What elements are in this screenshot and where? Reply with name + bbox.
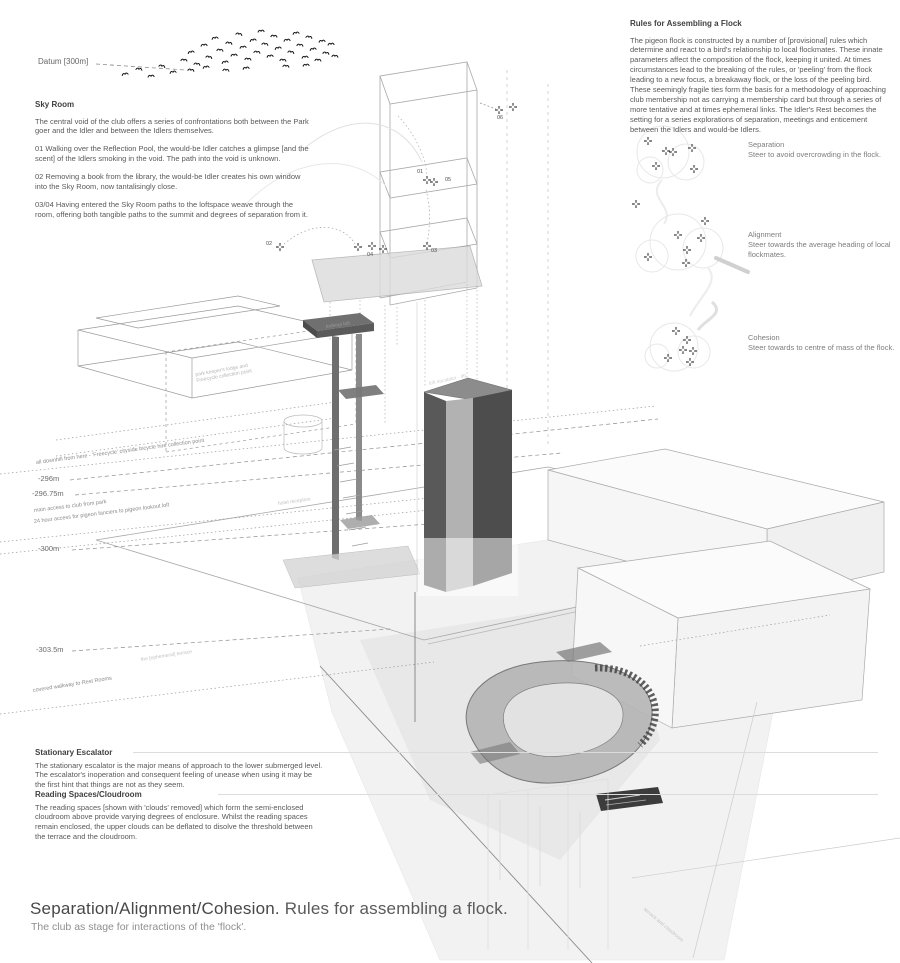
cloudroom-text-block: Reading Spaces/Cloudroom The reading spa… (35, 790, 323, 850)
rule-desc: Steer to avoid overcrowding in the flock… (748, 150, 881, 159)
heading-rule-line (133, 752, 878, 753)
rule-desc: Steer towards to centre of mass of the f… (748, 343, 894, 352)
cloudroom-paragraph: The reading spaces [shown with 'clouds' … (35, 803, 323, 843)
escalator-paragraph: The stationary escalator is the major me… (35, 761, 323, 791)
sky-room-paragraph: The central void of the club offers a se… (35, 117, 311, 137)
sheet-subtitle: The club as stage for interactions of th… (31, 921, 246, 933)
rules-paragraph: The pigeon flock is constructed by a num… (630, 36, 896, 85)
marker-03: 03 (431, 248, 437, 254)
sheet-title: Separation/Alignment/Cohesion. Rules for… (30, 899, 508, 919)
cloudroom-heading: Reading Spaces/Cloudroom (35, 790, 323, 801)
rule-name: Cohesion (748, 333, 900, 343)
rules-heading: Rules for Assembling a Flock (630, 19, 896, 30)
bird-flock (122, 30, 339, 77)
title-main: Separation/Alignment/Cohesion. (30, 899, 280, 918)
heading-rule-line (218, 794, 878, 795)
loft-escalator-tower (418, 378, 518, 596)
lookout-loft-structure (303, 313, 384, 560)
escalator-heading: Stationary Escalator (35, 748, 323, 759)
rules-paragraph: These seemingly fragile ties form the ba… (630, 85, 896, 134)
elevation-label-296: -296m (38, 474, 59, 483)
sky-room-paragraph: 01 Walking over the Reflection Pool, the… (35, 144, 311, 164)
rules-text-block: Rules for Assembling a Flock The pigeon … (630, 19, 896, 142)
title-rest: Rules for assembling a flock. (280, 899, 508, 918)
elevation-label-300: -300m (38, 544, 59, 553)
sky-room-paragraph: 02 Removing a book from the library, the… (35, 172, 311, 192)
marker-01: 01 (417, 169, 423, 175)
rule-name: Separation (748, 140, 900, 150)
datum-label: Datum [300m] (38, 57, 88, 66)
poster-page: Datum [300m] Sky Room The central void o… (0, 0, 900, 963)
marker-02: 02 (266, 241, 272, 247)
marker-06: 06 (497, 115, 503, 121)
sky-room-tower (312, 62, 548, 446)
marker-04: 04 (367, 252, 373, 258)
rule-name: Alignment (748, 230, 900, 240)
elevation-label-296-75: -296.75m (32, 489, 64, 498)
rule-alignment: Alignment Steer towards the average head… (748, 230, 900, 259)
elevation-label-303-5: -303.5m (36, 645, 64, 654)
sky-room-text-block: Sky Room The central void of the club of… (35, 100, 311, 228)
sky-room-heading: Sky Room (35, 100, 311, 111)
flock-rule-diagrams (636, 126, 748, 371)
sky-room-paragraph: 03/04 Having entered the Sky Room paths … (35, 200, 311, 220)
rule-desc: Steer towards the average heading of loc… (748, 240, 891, 259)
rule-separation: Separation Steer to avoid overcrowding i… (748, 140, 900, 160)
rule-cohesion: Cohesion Steer towards to centre of mass… (748, 333, 900, 353)
marker-05: 05 (445, 177, 451, 183)
